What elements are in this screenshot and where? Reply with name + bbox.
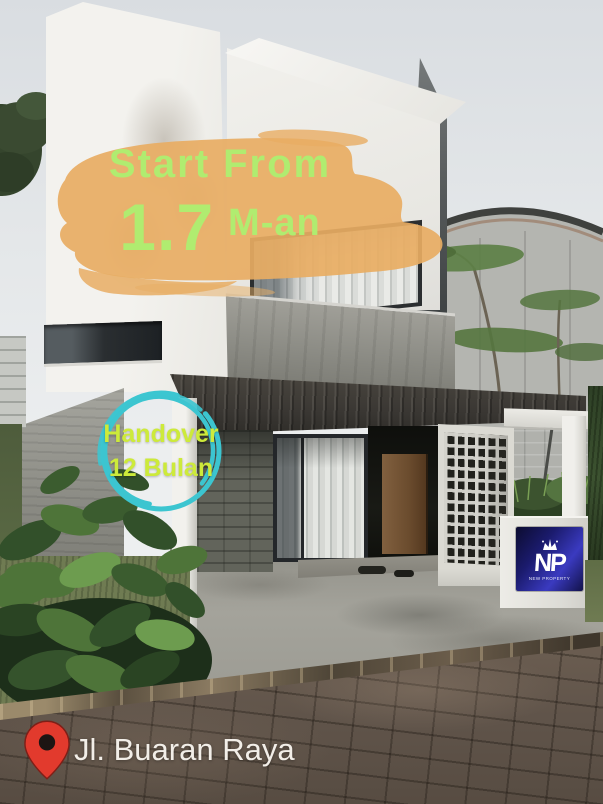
wooden-door — [382, 454, 428, 554]
entry-alcove — [368, 426, 440, 562]
right-hedge — [588, 386, 603, 568]
price-value: 1.7 — [119, 194, 214, 260]
price-line1: Start From — [55, 138, 385, 190]
right-grass — [585, 560, 603, 622]
glass-door — [273, 434, 368, 562]
listing-photo: Start From 1.7 M-an Handover 12 Bulan NP… — [0, 0, 603, 804]
handover-line2: 12 Bulan — [109, 451, 213, 485]
floor-object — [394, 570, 414, 577]
developer-logo: NP NEW PROPERTY — [516, 527, 583, 591]
handover-badge: Handover 12 Bulan — [96, 386, 226, 516]
breeze-block-grid — [444, 432, 508, 565]
logo-initials: NP — [533, 551, 565, 575]
address-bar: Jl. Buaran Raya — [24, 720, 295, 780]
floor-object — [358, 566, 386, 574]
pergola-pillar — [562, 416, 586, 528]
price-unit: M-an — [228, 204, 321, 242]
price-overlay: Start From 1.7 M-an — [55, 138, 385, 260]
location-pin-icon — [24, 720, 70, 780]
address-label: Jl. Buaran Raya — [74, 732, 295, 768]
handover-line1: Handover — [103, 417, 218, 451]
tower-slot-window — [44, 321, 162, 367]
neighbor-block-wall — [0, 336, 26, 428]
